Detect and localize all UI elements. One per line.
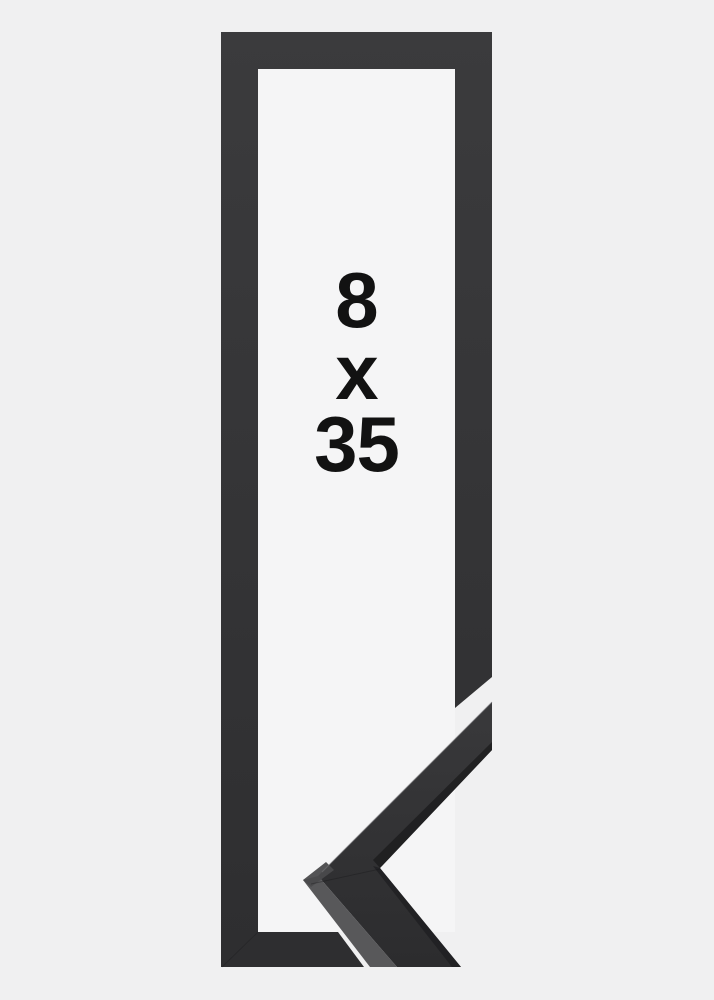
frame-bottom-bar (221, 932, 364, 967)
size-separator: x (258, 336, 455, 408)
frame-graphic (0, 0, 714, 1000)
frame-right-bar (455, 32, 492, 708)
size-label: 8 x 35 (258, 264, 455, 480)
frame-left-bar (221, 32, 258, 967)
size-height-value: 35 (258, 408, 455, 480)
frame-product-image: 8 x 35 (0, 0, 714, 1000)
frame-top-bar (221, 32, 492, 69)
size-width-value: 8 (258, 264, 455, 336)
